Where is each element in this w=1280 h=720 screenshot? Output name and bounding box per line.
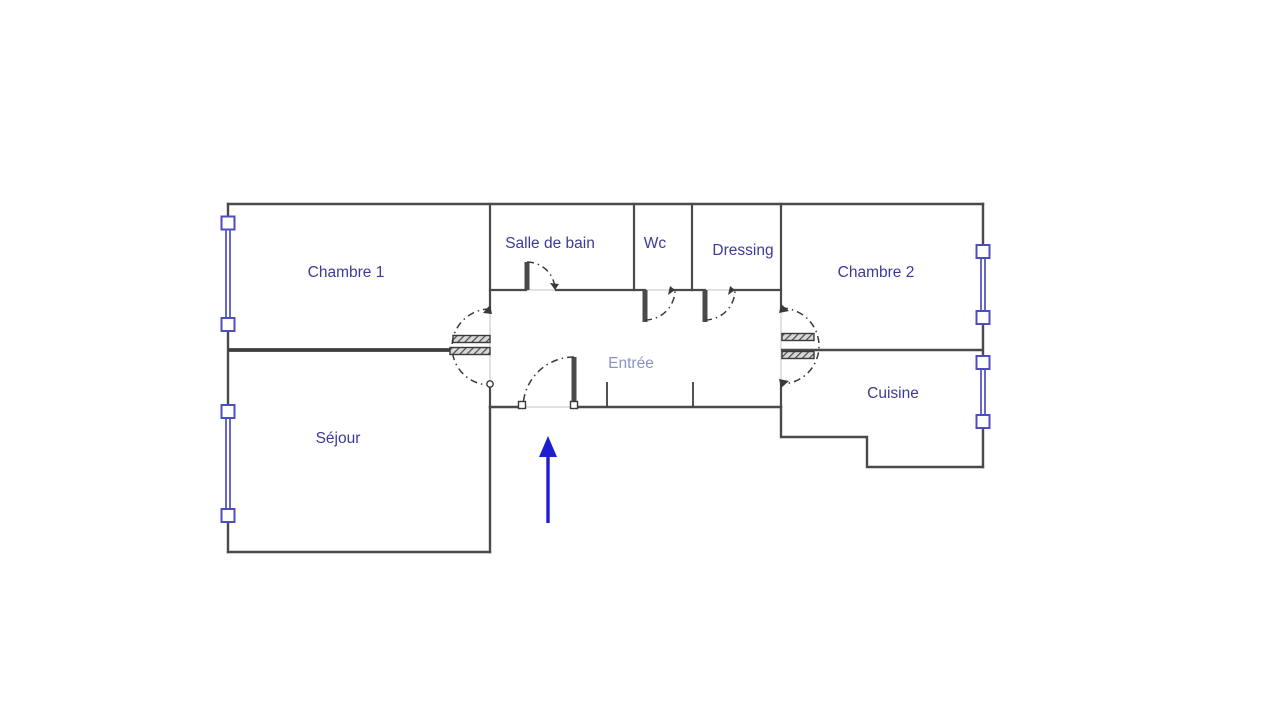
wall-cuisine-notch (781, 407, 983, 467)
opening-guides (490, 290, 781, 407)
wall-hall-closet-stubs (607, 382, 693, 407)
door-dressing (703, 286, 736, 322)
room-label-chambre-2: Chambre 2 (838, 264, 915, 281)
door-hall-chambre2-cuisine (779, 304, 819, 388)
window-sejour (222, 405, 235, 522)
window-chambre1 (222, 217, 235, 332)
room-label-cuisine: Cuisine (867, 385, 919, 402)
room-label-dressing: Dressing (712, 242, 773, 259)
floor-plan-svg: Chambre 1 Séjour Salle de bain Wc Dressi… (0, 0, 1280, 720)
door-wc (643, 286, 676, 322)
room-label-sejour: Séjour (316, 430, 361, 447)
windows (222, 217, 990, 523)
room-label-salle-de-bain: Salle de bain (505, 235, 595, 252)
window-cuisine (977, 356, 990, 428)
entrance-arrow-icon (539, 436, 557, 523)
door-salle-de-bain (525, 262, 560, 290)
window-chambre2 (977, 245, 990, 324)
door-hall-sejour-double (450, 305, 493, 387)
room-label-entree: Entrée (608, 355, 654, 372)
room-label-wc: Wc (644, 235, 667, 252)
outer-walls (228, 204, 983, 552)
door-entrance (519, 357, 578, 409)
room-labels: Chambre 1 Séjour Salle de bain Wc Dressi… (308, 235, 919, 447)
interior-walls (228, 204, 983, 407)
floor-plan-canvas: Chambre 1 Séjour Salle de bain Wc Dressi… (0, 0, 1280, 720)
room-label-chambre-1: Chambre 1 (308, 264, 385, 281)
